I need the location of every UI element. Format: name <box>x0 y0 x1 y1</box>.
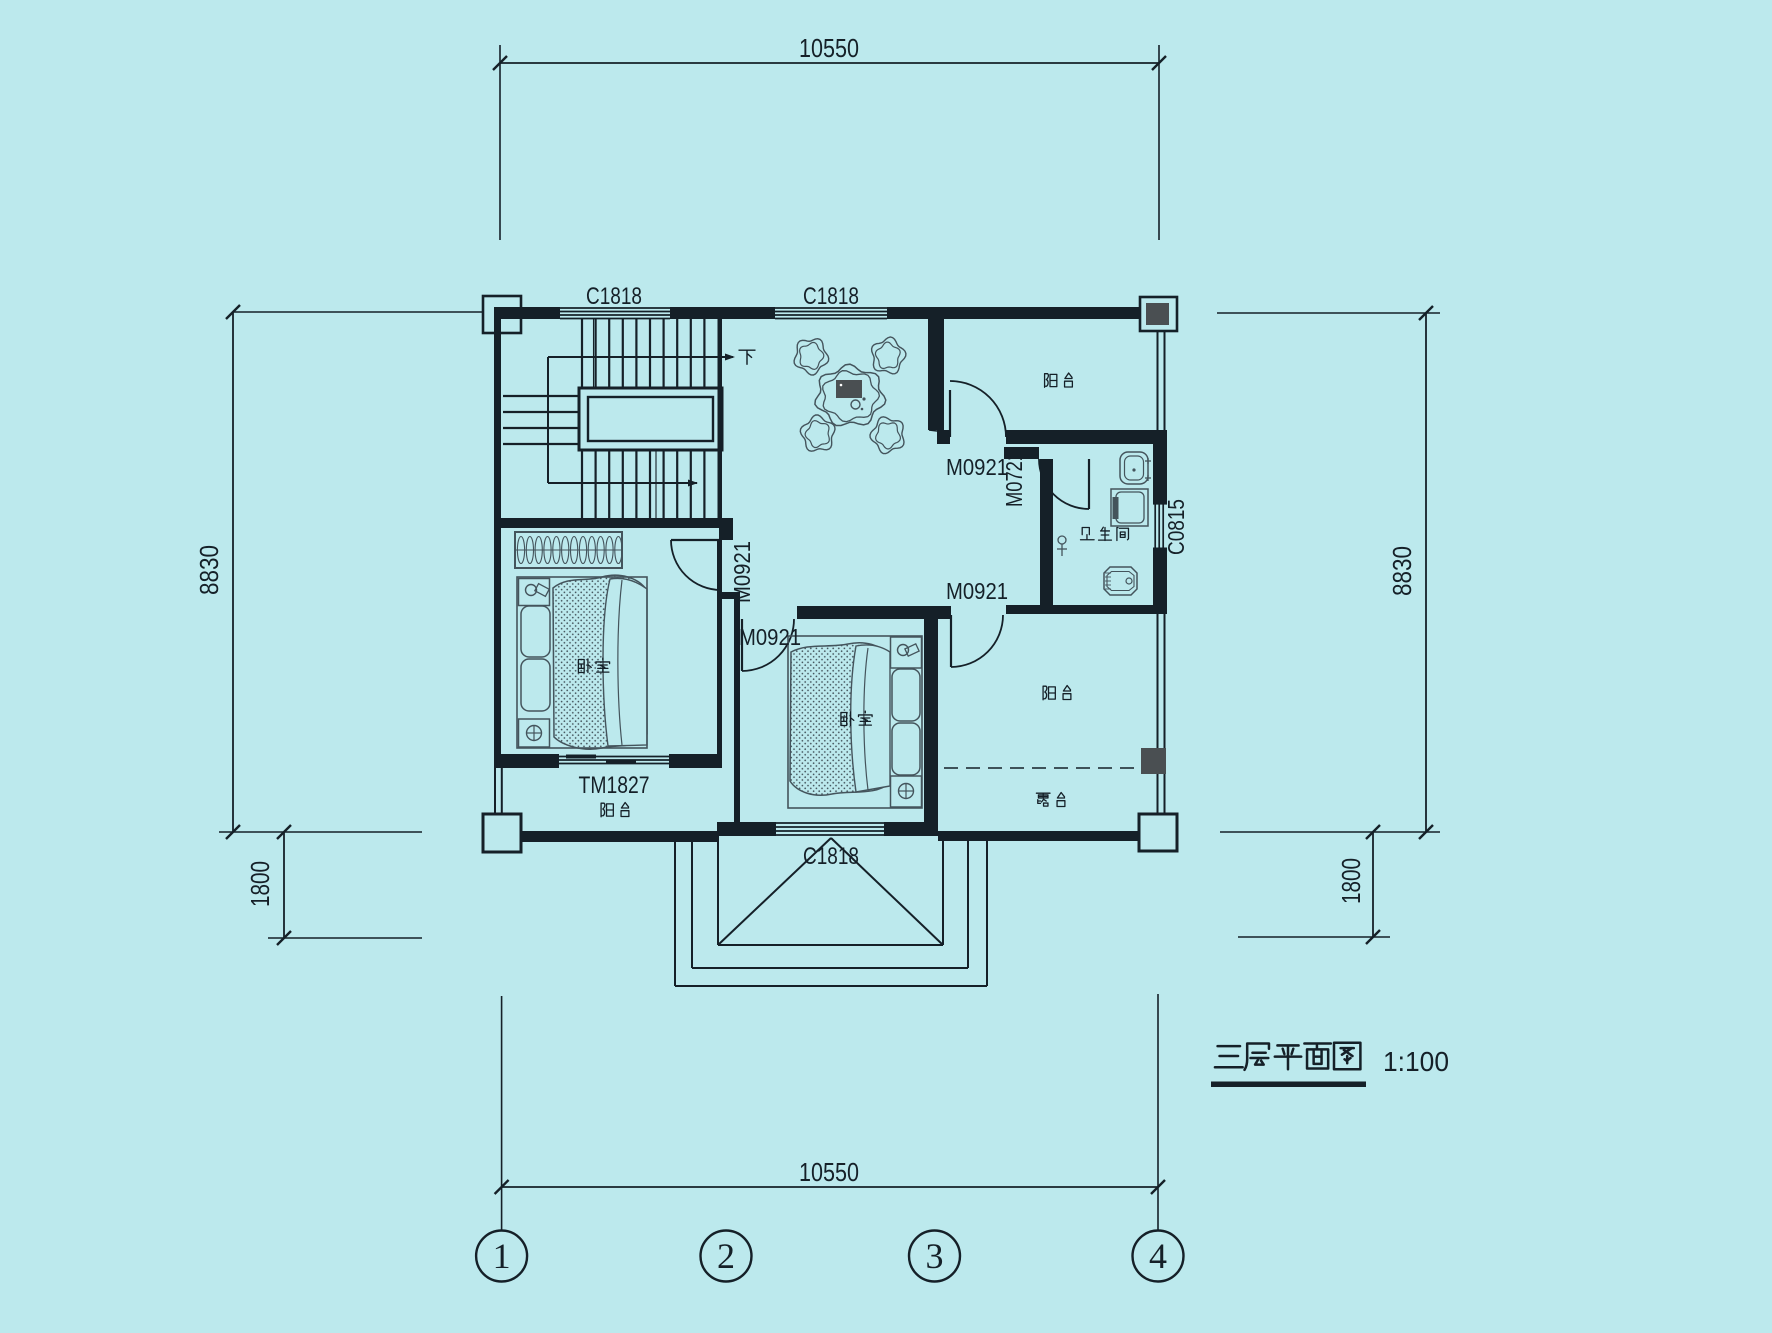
svg-text:10550: 10550 <box>799 33 859 63</box>
svg-text:C1818: C1818 <box>803 283 859 310</box>
svg-text:8830: 8830 <box>1387 546 1417 596</box>
svg-text:C0815: C0815 <box>1163 499 1189 555</box>
svg-text:2: 2 <box>717 1236 735 1276</box>
svg-text:M0921: M0921 <box>946 578 1008 604</box>
svg-text:M0721: M0721 <box>1001 451 1027 507</box>
svg-text:TM1827: TM1827 <box>579 772 650 799</box>
svg-text:1:100: 1:100 <box>1383 1046 1449 1077</box>
svg-text:M0921: M0921 <box>729 541 755 603</box>
svg-text:1: 1 <box>493 1236 511 1276</box>
svg-text:3: 3 <box>926 1236 944 1276</box>
svg-text:1800: 1800 <box>245 861 275 907</box>
svg-text:C1818: C1818 <box>586 283 642 310</box>
svg-text:M0921: M0921 <box>739 624 801 650</box>
svg-text:1800: 1800 <box>1336 858 1366 904</box>
svg-text:M0921: M0921 <box>946 454 1008 480</box>
svg-text:C1818: C1818 <box>803 843 859 870</box>
svg-text:8830: 8830 <box>194 545 224 595</box>
svg-text:4: 4 <box>1149 1236 1167 1276</box>
svg-text:10550: 10550 <box>799 1157 859 1187</box>
